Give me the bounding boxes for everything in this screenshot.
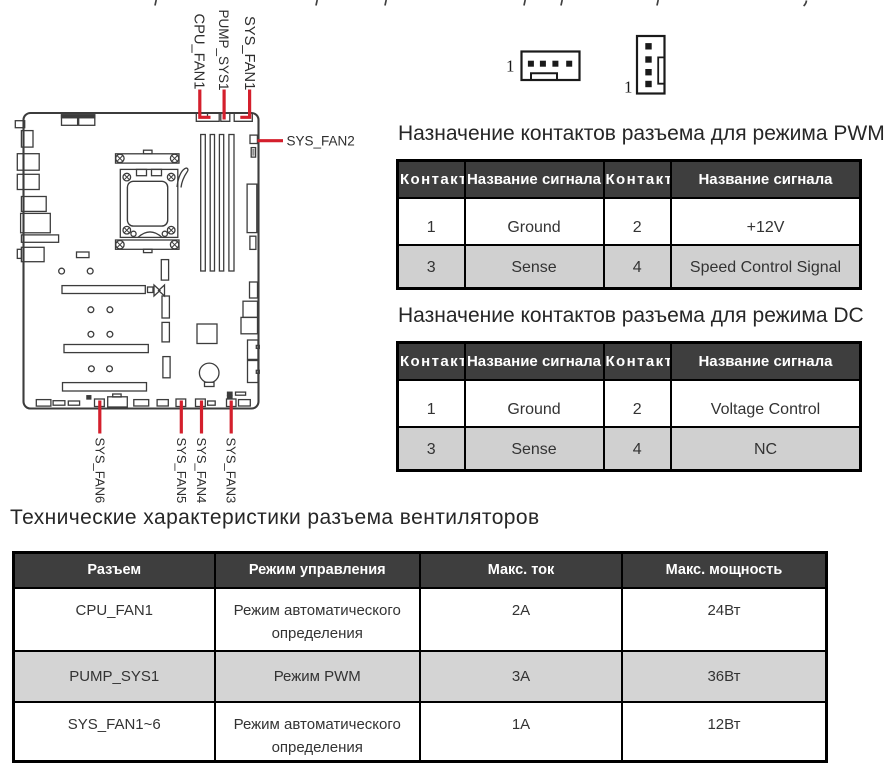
svg-text:SYS_FAN1: SYS_FAN1 <box>241 16 257 90</box>
svg-text:1: 1 <box>506 57 515 76</box>
svg-text:1: 1 <box>624 78 633 97</box>
svg-text:SYS_FAN6: SYS_FAN6 <box>93 438 108 504</box>
svg-text:CPU_FAN1: CPU_FAN1 <box>191 14 207 90</box>
svg-text:SYS_FAN2: SYS_FAN2 <box>287 134 355 149</box>
svg-text:SYS_FAN4: SYS_FAN4 <box>194 438 209 504</box>
svg-text:SYS_FAN3: SYS_FAN3 <box>224 438 239 504</box>
svg-text:PUMP_SYS1: PUMP_SYS1 <box>216 10 231 91</box>
svg-text:SYS_FAN5: SYS_FAN5 <box>174 438 189 504</box>
